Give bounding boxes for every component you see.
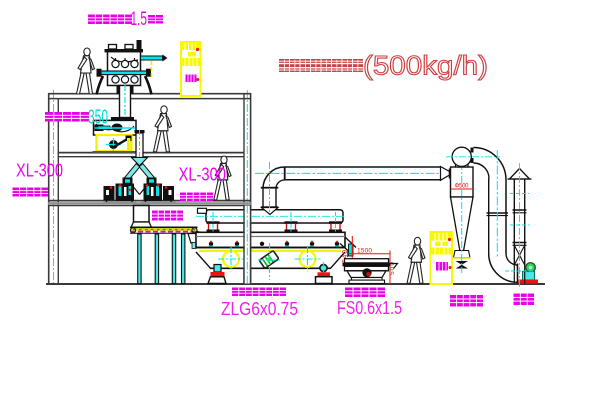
svg-text:1500: 1500 bbox=[357, 248, 372, 255]
svg-text:1.5: 1.5 bbox=[131, 9, 148, 30]
svg-text:(500kg/h): (500kg/h) bbox=[363, 51, 488, 81]
svg-text:FS0.6x1.5: FS0.6x1.5 bbox=[337, 297, 402, 318]
svg-text:XL-300: XL-300 bbox=[179, 165, 227, 185]
svg-text:XL-300: XL-300 bbox=[16, 161, 63, 181]
svg-text:ZLG6x0.75: ZLG6x0.75 bbox=[221, 298, 298, 319]
svg-text:350: 350 bbox=[88, 107, 108, 129]
